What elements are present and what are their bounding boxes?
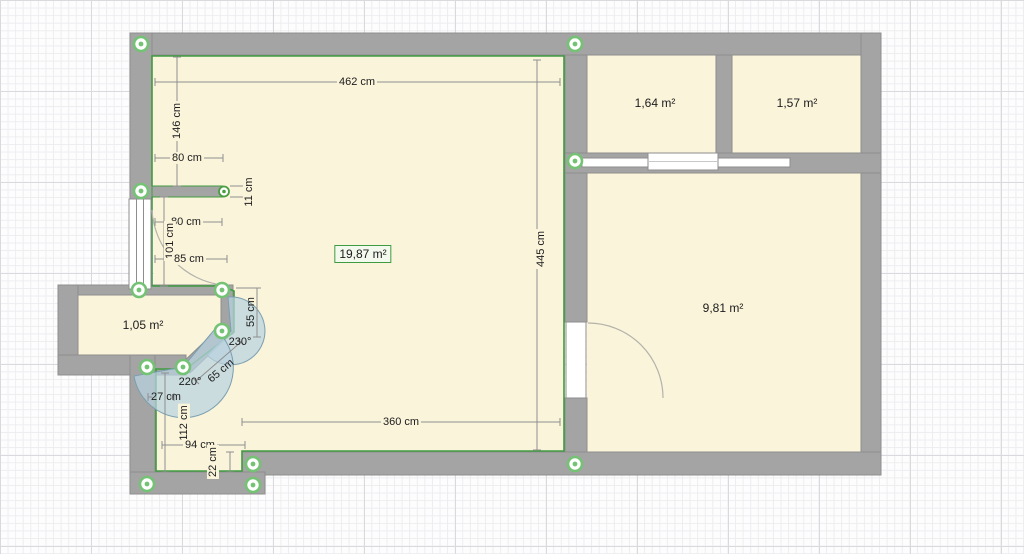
dimension-label-462cm[interactable]: 462 cm xyxy=(337,76,377,88)
dimension-label-112cm[interactable]: 112 cm xyxy=(178,403,190,442)
wall-endpoint-marker[interactable] xyxy=(176,360,190,374)
wall-endpoint-marker[interactable] xyxy=(568,154,582,168)
dimension-label-11cm[interactable]: 11 cm xyxy=(243,175,255,208)
dimension-label-55cm[interactable]: 55 cm xyxy=(245,297,257,327)
wall-top[interactable] xyxy=(130,33,881,55)
wall-endpoint-marker[interactable] xyxy=(568,457,582,471)
wall-endpoint-marker[interactable] xyxy=(140,477,154,491)
dimension-label-146cm[interactable]: 146 cm xyxy=(171,101,183,141)
wall-bottom[interactable] xyxy=(242,452,881,475)
wall-endpoint-marker[interactable] xyxy=(134,184,148,198)
wall-stub[interactable] xyxy=(152,186,228,197)
dimension-label-445cm[interactable]: 445 cm xyxy=(535,229,547,269)
door-angle-label-220[interactable]: 220° xyxy=(179,376,202,388)
wall-endpoint-marker[interactable] xyxy=(568,37,582,51)
room-label-bedroom[interactable]: 9,81 m² xyxy=(703,301,744,315)
dimension-label-360cm[interactable]: 360 cm xyxy=(381,416,421,428)
room-label-niche[interactable]: 1,05 m² xyxy=(123,318,164,332)
dimension-label-85cm[interactable]: 85 cm xyxy=(172,253,206,265)
floor-plan-canvas[interactable]: 462 cm 146 cm 80 cm 11 cm 80 cm 101 cm 8… xyxy=(0,0,1024,554)
wall-closets-divider[interactable] xyxy=(716,55,732,153)
wall-endpoint-marker[interactable] xyxy=(140,360,154,374)
wall-endpoint-marker[interactable] xyxy=(134,37,148,51)
wall-right[interactable] xyxy=(861,33,881,475)
room-label-closet-right[interactable]: 1,57 m² xyxy=(777,96,818,110)
room-floor-living[interactable] xyxy=(152,55,565,472)
wall-endpoint-marker[interactable] xyxy=(215,324,229,338)
wall-endpoint-marker[interactable] xyxy=(246,457,260,471)
dimension-label-27cm[interactable]: 27 cm xyxy=(151,391,181,403)
wall-interior-vertical-lower[interactable] xyxy=(565,398,587,452)
wall-endpoint-marker[interactable] xyxy=(246,478,260,492)
dimension-label-22cm[interactable]: 22 cm xyxy=(207,445,219,479)
wall-endpoint-marker[interactable] xyxy=(215,283,229,297)
wall-endpoint-marker[interactable] xyxy=(132,283,146,297)
room-label-living[interactable]: 19,87 m² xyxy=(334,245,391,263)
floor-plan-drawing xyxy=(0,0,1024,554)
wall-endpoint-marker[interactable] xyxy=(219,187,229,197)
window-left[interactable] xyxy=(129,199,151,289)
wall-interior-vertical-upper[interactable] xyxy=(565,55,587,322)
dimension-label-80cm-upper[interactable]: 80 cm xyxy=(170,152,204,164)
room-label-closet-left[interactable]: 1,64 m² xyxy=(635,96,676,110)
door-angle-label-230[interactable]: 230° xyxy=(229,336,252,348)
